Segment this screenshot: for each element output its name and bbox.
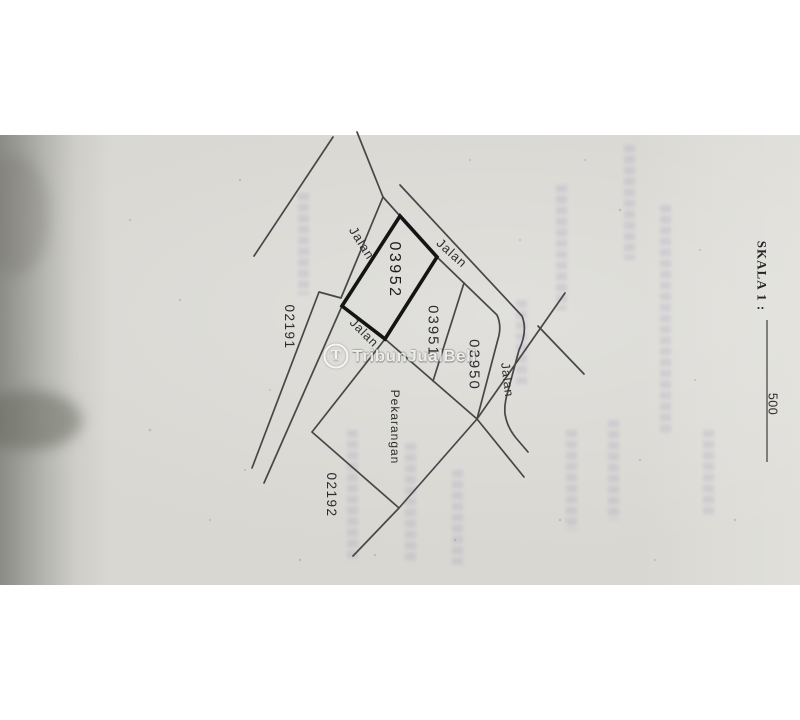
road-label-bend: Jalan	[499, 362, 516, 398]
boundary-line	[254, 137, 333, 256]
parcel-03952-label: 03952	[386, 242, 402, 299]
main-road-upper-boundary	[400, 185, 528, 452]
watermark-logo-icon: T	[323, 344, 348, 369]
block-02192-label: 02192	[324, 472, 338, 517]
scale-value: 500	[766, 393, 779, 415]
road-stub	[538, 326, 584, 374]
land-use-label: Pekarangan	[389, 390, 401, 465]
scale-label: SKALA 1 :	[756, 241, 769, 311]
watermark: T TribunJualBeli	[323, 344, 476, 369]
white-margin-bottom	[0, 585, 800, 720]
road-left-boundary	[252, 132, 383, 468]
photographed-land-sketch: Jalan Jalan Jalan Jalan 03952 03951 0395…	[0, 0, 800, 720]
long-se-boundary	[353, 293, 565, 556]
watermark-text: TribunJualBeli	[352, 346, 476, 366]
block-02191-label: 02191	[282, 304, 296, 349]
main-road-lower-boundary	[383, 197, 400, 216]
